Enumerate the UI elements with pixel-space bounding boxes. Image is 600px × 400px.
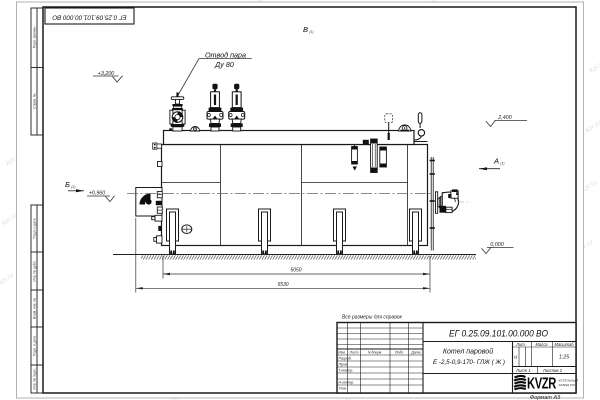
svg-text:Формат А3: Формат А3 (530, 395, 561, 400)
svg-text:Разраб.: Разраб. (339, 357, 352, 361)
svg-text:(1): (1) (500, 162, 504, 166)
svg-text:Дата: Дата (410, 350, 420, 354)
svg-text:KVZR: KVZR (527, 376, 557, 393)
svg-text:Справ. №: Справ. № (32, 93, 36, 109)
svg-text:КОТЕЛЬНЫЙ: КОТЕЛЬНЫЙ (559, 379, 579, 383)
svg-text:kzr.ru: kzr.ru (0, 272, 15, 287)
svg-text:Масштаб: Масштаб (554, 342, 574, 347)
svg-text:ЗАВОД РЭП: ЗАВОД РЭП (559, 383, 578, 387)
svg-text:+0,960: +0,960 (89, 191, 105, 197)
svg-text:ЕГ 0.25.09.101.00.000 ВО: ЕГ 0.25.09.101.00.000 ВО (449, 329, 548, 339)
svg-text:Пров.: Пров. (339, 363, 349, 367)
svg-text:Лит.: Лит. (515, 342, 526, 347)
svg-text:Подп.: Подп. (395, 350, 404, 354)
svg-text:5050: 5050 (290, 268, 301, 274)
svg-text:5530: 5530 (277, 282, 288, 288)
svg-text:Все размеры для справок: Все размеры для справок (342, 315, 403, 321)
svg-text:Подп. и дата: Подп. и дата (32, 336, 36, 356)
svg-text:Отвод пара: Отвод пара (205, 50, 246, 59)
svg-text:Взам. инв. №: Взам. инв. № (32, 298, 36, 319)
svg-text:Изм.: Изм. (338, 350, 345, 354)
svg-text:Т.контр.: Т.контр. (339, 369, 354, 373)
svg-text:и: и (514, 355, 517, 361)
svg-text:Инв. № дубл.: Инв. № дубл. (32, 260, 36, 281)
svg-text:2,400: 2,400 (497, 115, 512, 121)
svg-text:Утв.: Утв. (339, 387, 347, 391)
svg-text:Листов 2: Листов 2 (542, 368, 563, 373)
svg-text:Лист 1: Лист 1 (515, 368, 531, 373)
svg-text:Перв. примен.: Перв. примен. (32, 26, 36, 49)
svg-text:Е -2,5-0,9-170- ГЛЖ ( Ж ): Е -2,5-0,9-170- ГЛЖ ( Ж ) (433, 360, 505, 366)
svg-text:Ду 80: Ду 80 (214, 60, 234, 69)
svg-text:Б: Б (65, 180, 70, 189)
svg-text:Масса: Масса (535, 342, 548, 347)
svg-text:(1): (1) (71, 185, 75, 189)
svg-text:Лист: Лист (348, 350, 358, 354)
svg-text:N докум.: N докум. (368, 350, 382, 354)
svg-text:(1): (1) (309, 30, 313, 34)
svg-text:Инв. № подл.: Инв. № подл. (32, 368, 36, 389)
svg-text:kzr.ru: kzr.ru (584, 119, 600, 134)
svg-text:Подп. и дата: Подп. и дата (32, 218, 36, 238)
svg-text:Н.контр.: Н.контр. (339, 381, 355, 385)
svg-text:ЕГ 0.25.09.101.00.000 ВО: ЕГ 0.25.09.101.00.000 ВО (52, 14, 126, 21)
svg-text:В: В (303, 25, 308, 34)
svg-text:kzr.ru: kzr.ru (588, 59, 600, 74)
svg-text:А: А (493, 157, 499, 166)
svg-text:Котел паровой: Котел паровой (443, 348, 493, 356)
svg-text:1:25: 1:25 (559, 355, 569, 361)
